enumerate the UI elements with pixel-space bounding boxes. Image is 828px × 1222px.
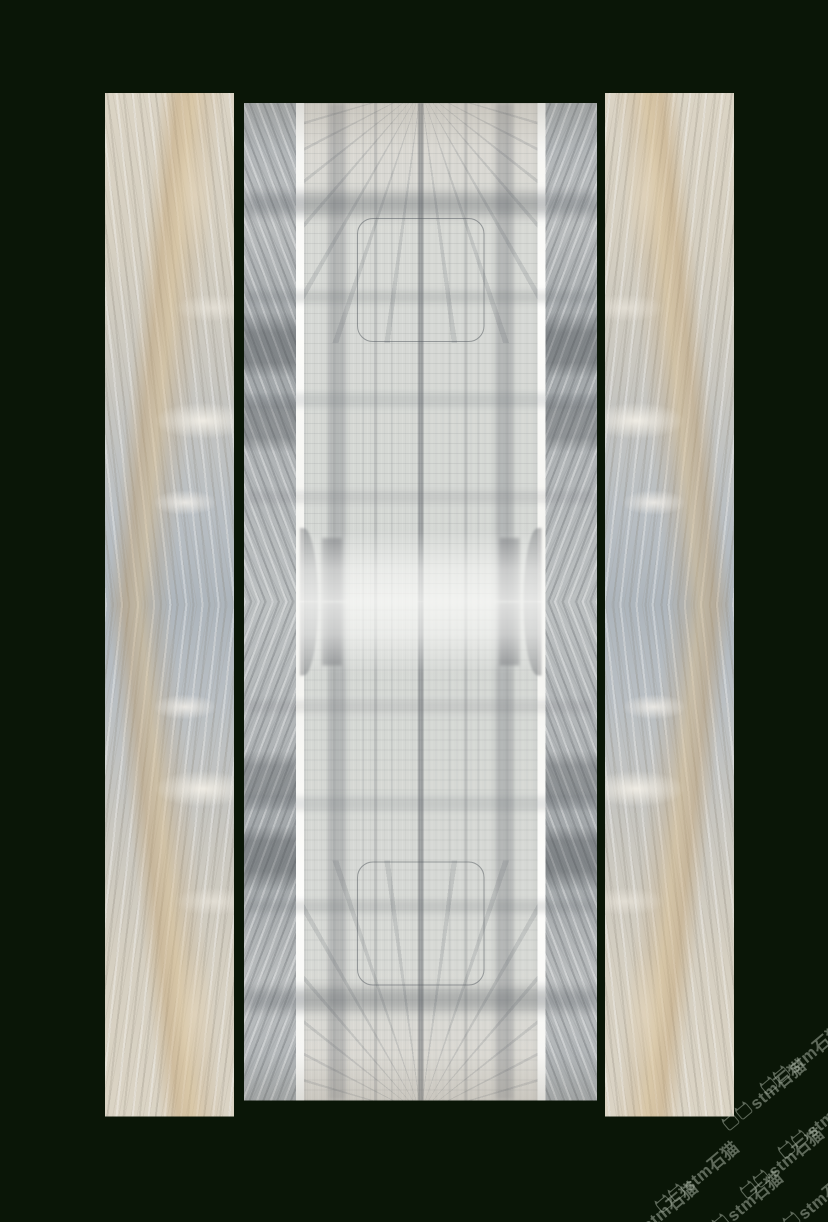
center-panel-quadrant: [244, 602, 421, 1101]
cat-logo-icon: [668, 1184, 686, 1202]
watermark: stm石猫: [735, 1120, 828, 1204]
marble-texture: [605, 605, 734, 1117]
center-panel-quadrant: [421, 103, 598, 602]
cat-logo-icon: [735, 1102, 753, 1120]
watermark: stm石猫: [650, 1134, 743, 1218]
center-panel-quadrant: [244, 103, 421, 602]
cat-logo-icon: [783, 1212, 801, 1222]
white-stripe: [537, 602, 545, 1101]
cat-logo-icon: [773, 1066, 791, 1084]
dark-vertical-vein: [328, 103, 346, 602]
horizontal-shadow-band: [244, 900, 597, 912]
horizontal-shadow-band: [244, 393, 597, 407]
rounded-reflection-outline: [421, 218, 485, 342]
top-shade: [244, 103, 597, 149]
rounded-reflection-outline: [357, 861, 421, 985]
watermark-text: stm石猫: [791, 1162, 828, 1222]
right-slab-half: [605, 605, 734, 1117]
horizontal-shadow-band: [244, 796, 597, 810]
white-stripe: [296, 602, 304, 1101]
cat-logo-icon: [778, 1141, 796, 1159]
cat-logo-icon: [712, 1214, 730, 1222]
dark-vertical-vein: [495, 103, 513, 602]
marble-texture: [105, 605, 234, 1117]
top-shade: [244, 1054, 597, 1100]
cat-logo-icon: [760, 1077, 778, 1095]
watermark: stm石猫: [773, 1080, 828, 1164]
thin-vertical-vein: [374, 103, 377, 602]
bright-center-glow: [296, 530, 545, 602]
center-panel-half: [244, 103, 597, 602]
thin-vertical-vein: [464, 602, 467, 1101]
gray-marble-border-strip: [244, 602, 296, 1101]
watermark: stm石猫: [755, 1016, 828, 1100]
watermark-text: stm石猫: [676, 1134, 743, 1196]
watermark-text: stm石猫: [720, 1164, 787, 1222]
horizontal-shadow-band: [244, 291, 597, 303]
cat-logo-icon: [791, 1130, 809, 1148]
center-panel-quadrant: [421, 602, 598, 1101]
watermark-text: stm石猫: [799, 1080, 828, 1142]
center-panel-half: [244, 602, 597, 1101]
thin-vertical-vein: [374, 602, 377, 1101]
rounded-reflection-outline: [421, 861, 485, 985]
light-marble-field: [421, 103, 538, 602]
watermark: stm石猫: [765, 1162, 828, 1222]
gray-marble-border-strip: [545, 602, 597, 1101]
watermark: stm石猫: [609, 1174, 702, 1222]
center-seam-line: [421, 103, 424, 602]
thin-vertical-vein: [464, 103, 467, 602]
rounded-reflection-outline: [357, 218, 421, 342]
watermark-text: stm石猫: [761, 1120, 828, 1182]
watermark-text: stm石猫: [635, 1174, 702, 1222]
bright-center-glow: [296, 602, 545, 674]
horizontal-shadow-band: [244, 193, 597, 215]
horizontal-shadow-band: [244, 491, 597, 503]
left-slab-half: [105, 605, 234, 1117]
marble-texture: [105, 93, 234, 605]
light-marble-field: [304, 103, 421, 602]
marble-texture: [605, 93, 734, 605]
center-seam-line: [421, 602, 424, 1101]
right-slab-half: [605, 93, 734, 605]
light-marble-field: [304, 602, 421, 1101]
watermark: stm石猫: [694, 1164, 787, 1222]
white-stripe: [296, 103, 304, 602]
watermark-text: stm石猫: [781, 1016, 828, 1078]
dark-vertical-vein: [495, 602, 513, 1101]
marble-slab-composite: stm石猫stm石猫stm石猫stm石猫stm石猫stm石猫stm石猫stm石猫: [0, 0, 828, 1222]
left-slab-half: [105, 93, 234, 605]
cat-logo-icon: [753, 1170, 771, 1188]
cat-logo-icon: [655, 1195, 673, 1213]
gray-marble-border-strip: [244, 103, 296, 602]
gray-marble-border-strip: [545, 103, 597, 602]
light-marble-field: [421, 602, 538, 1101]
dark-vertical-vein: [328, 602, 346, 1101]
right-marble-slab: [605, 93, 734, 1116]
white-stripe: [537, 103, 545, 602]
center-marble-panel: [244, 103, 597, 1100]
horizontal-shadow-band: [244, 988, 597, 1010]
left-marble-slab: [105, 93, 234, 1116]
watermark-text: stm石猫: [743, 1052, 810, 1114]
cat-logo-icon: [740, 1181, 758, 1199]
horizontal-shadow-band: [244, 700, 597, 712]
